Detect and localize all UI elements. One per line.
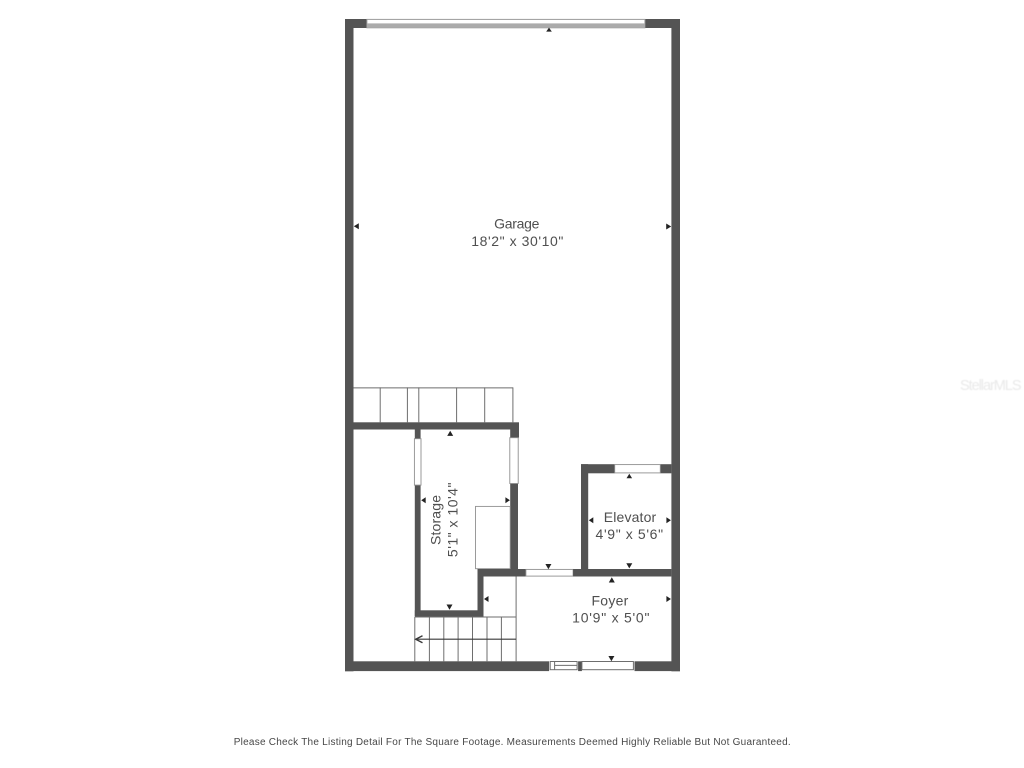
svg-text:4'9" x 5'6": 4'9" x 5'6" (596, 526, 664, 542)
svg-text:Foyer: Foyer (591, 593, 628, 609)
svg-text:StellarMLS: StellarMLS (960, 378, 1022, 394)
svg-text:Please Check The Listing Detai: Please Check The Listing Detail For The … (234, 737, 791, 748)
svg-text:Garage: Garage (494, 216, 540, 232)
svg-text:Elevator: Elevator (604, 509, 657, 525)
svg-text:10'9" x 5'0": 10'9" x 5'0" (572, 610, 649, 626)
svg-text:Storage: Storage (427, 495, 443, 545)
svg-text:5'1" x 10'4": 5'1" x 10'4" (445, 483, 461, 558)
svg-text:18'2" x 30'10": 18'2" x 30'10" (471, 233, 563, 249)
